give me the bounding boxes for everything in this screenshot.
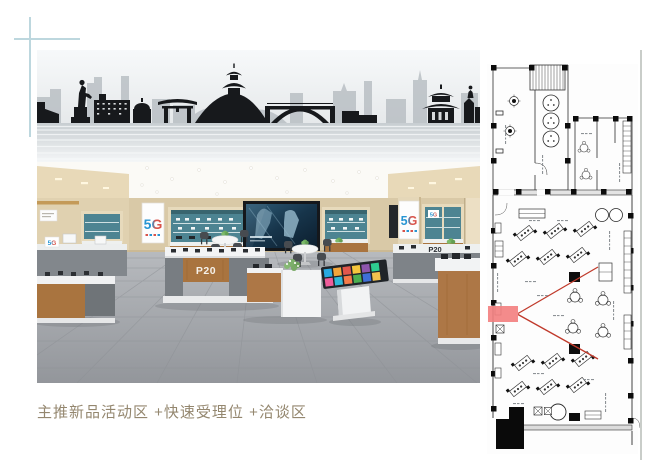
- desk-monitor-2: [95, 236, 106, 244]
- highlight-marker: [488, 306, 518, 322]
- wood-block-display: [435, 253, 480, 344]
- desk-monitor: [63, 234, 76, 243]
- hanging-light-bar: [37, 201, 79, 205]
- ceiling: [37, 162, 480, 202]
- dark-banner: [389, 205, 398, 238]
- poster-5g-right: 5G: [399, 201, 419, 239]
- poster-5g-right-text: 5G: [401, 214, 418, 228]
- plan-stairs: [530, 65, 565, 90]
- small-5g-sign-text: 5G: [430, 213, 437, 219]
- crosshair-vertical-line: [29, 17, 31, 137]
- floor-plan: [485, 63, 640, 455]
- floor-plan-svg: [485, 63, 640, 455]
- tabletop-5g-sign-text: 5G: [48, 240, 57, 247]
- counter-p20-right-label: P20: [428, 245, 441, 254]
- store-render-svg: 5G 5G 5G: [37, 50, 480, 383]
- poster-5g-left: 5G: [142, 203, 164, 243]
- wall-sign: [40, 210, 57, 221]
- right-rule-line: [640, 50, 642, 460]
- crosshair-horizontal-line: [14, 38, 80, 40]
- poster-5g-left-text: 5G: [144, 216, 163, 232]
- counter-p20-left-label: P20: [196, 265, 216, 277]
- store-render-image: 5G 5G 5G: [37, 50, 480, 383]
- caption: 主推新品活动区 +快速受理位 +洽谈区: [37, 402, 457, 424]
- counter-left-group: 5G: [37, 234, 127, 323]
